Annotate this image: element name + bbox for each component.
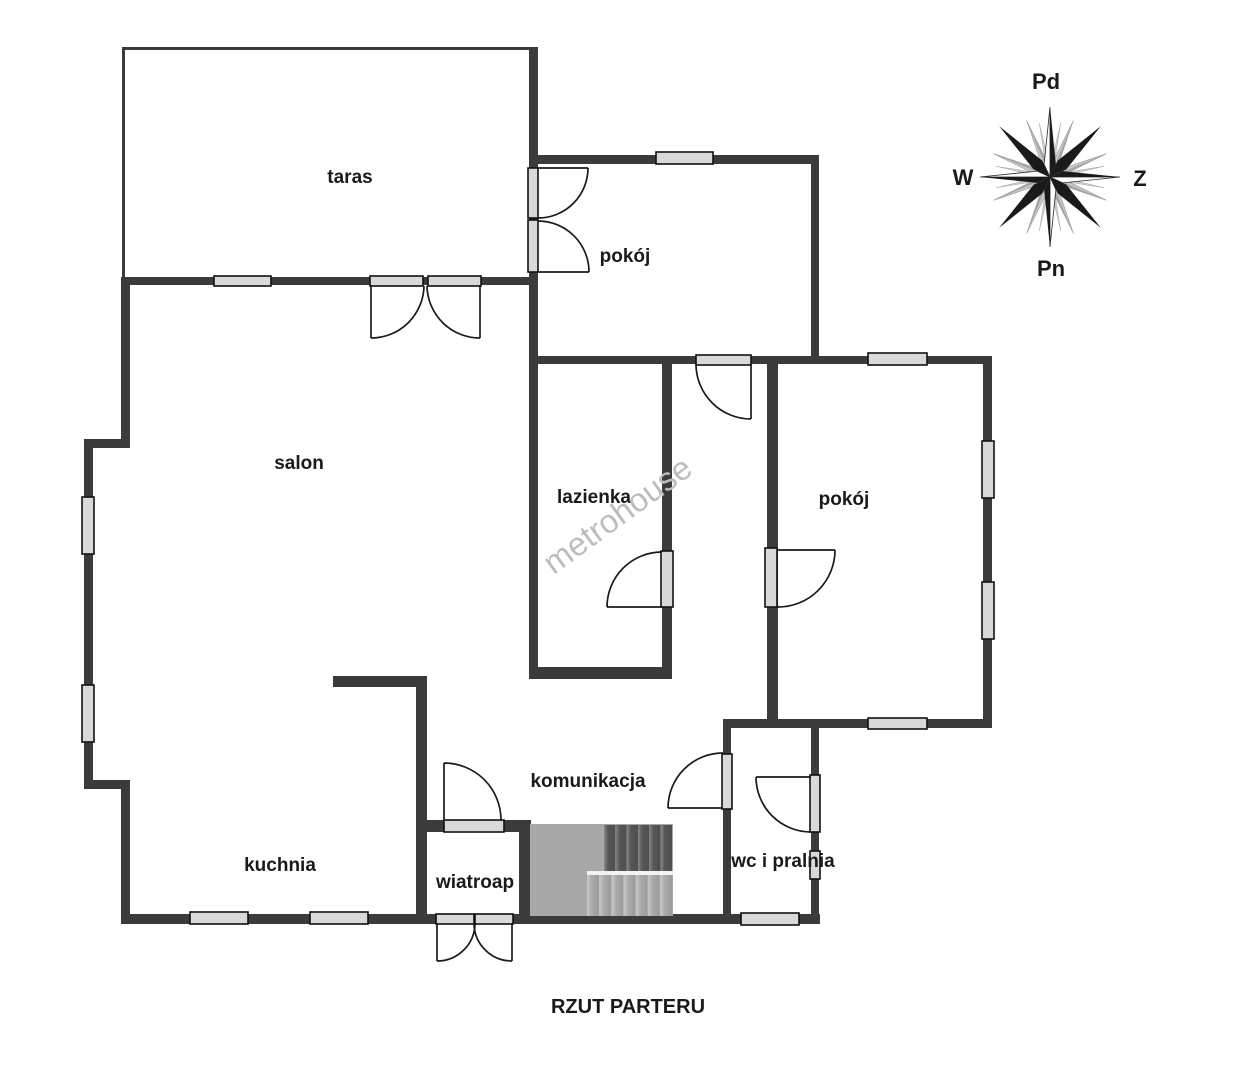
svg-text:salon: salon	[274, 453, 324, 474]
svg-text:wc i pralnia: wc i pralnia	[730, 851, 835, 872]
svg-text:Z: Z	[1133, 166, 1146, 191]
svg-text:komunikacja: komunikacja	[530, 771, 646, 792]
svg-text:wiatroap: wiatroap	[435, 872, 514, 893]
svg-text:taras: taras	[327, 167, 372, 188]
svg-text:RZUT PARTERU: RZUT PARTERU	[551, 996, 705, 1018]
svg-text:kuchnia: kuchnia	[244, 855, 316, 876]
svg-text:pokój: pokój	[819, 489, 870, 510]
svg-text:Pd: Pd	[1032, 69, 1060, 94]
svg-text:W: W	[953, 165, 974, 190]
svg-text:pokój: pokój	[600, 246, 651, 267]
svg-text:Pn: Pn	[1037, 256, 1065, 281]
